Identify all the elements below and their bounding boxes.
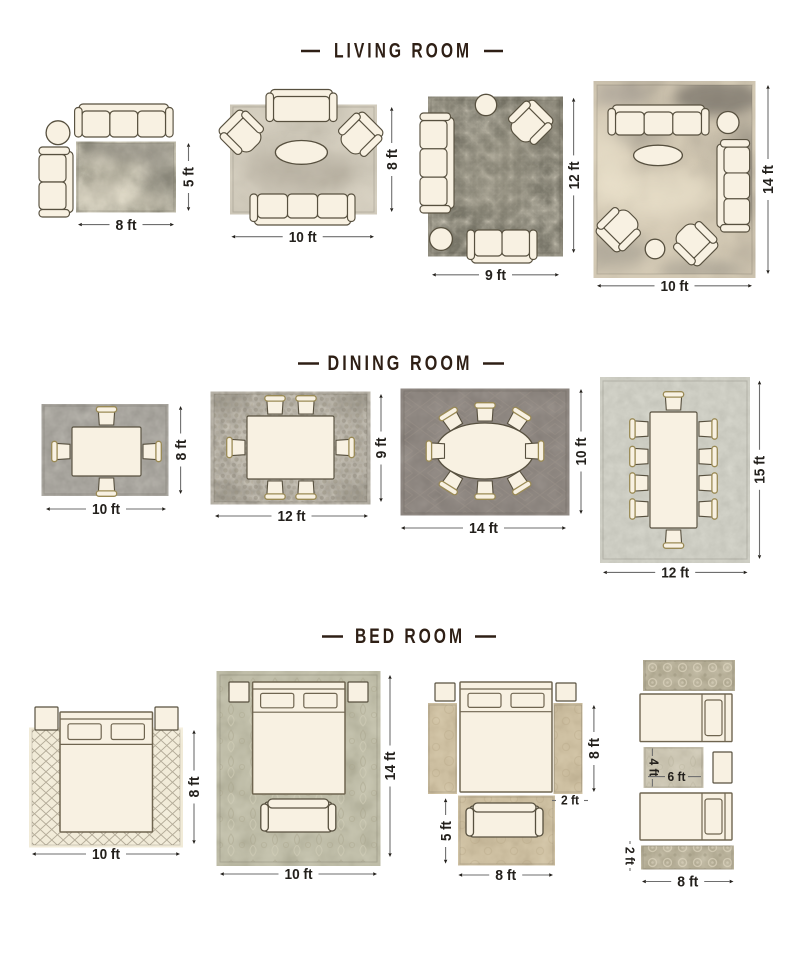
svg-text:5 ft: 5 ft — [182, 167, 198, 187]
svg-text:12 ft: 12 ft — [278, 509, 306, 525]
svg-text:15 ft: 15 ft — [753, 456, 769, 484]
svg-text:9 ft: 9 ft — [485, 268, 506, 284]
svg-text:DINING ROOM: DINING ROOM — [328, 352, 473, 375]
svg-text:10 ft: 10 ft — [661, 279, 689, 295]
svg-text:BED ROOM: BED ROOM — [355, 625, 465, 648]
svg-text:2 ft: 2 ft — [561, 793, 580, 808]
svg-text:10 ft: 10 ft — [574, 437, 590, 465]
svg-text:8 ft: 8 ft — [187, 776, 203, 797]
svg-text:8 ft: 8 ft — [587, 738, 603, 759]
svg-text:12 ft: 12 ft — [567, 161, 583, 189]
svg-text:9 ft: 9 ft — [374, 437, 390, 458]
svg-text:14 ft: 14 ft — [383, 751, 399, 780]
svg-text:6 ft: 6 ft — [668, 770, 687, 784]
svg-text:2 ft: 2 ft — [623, 847, 638, 866]
svg-text:12 ft: 12 ft — [661, 566, 689, 582]
svg-text:LIVING ROOM: LIVING ROOM — [334, 40, 472, 63]
svg-text:4 ft: 4 ft — [647, 759, 661, 778]
svg-text:8 ft: 8 ft — [116, 218, 137, 234]
svg-text:8 ft: 8 ft — [385, 149, 401, 170]
svg-text:8 ft: 8 ft — [174, 439, 190, 460]
svg-text:14 ft: 14 ft — [469, 521, 498, 537]
svg-text:14 ft: 14 ft — [761, 165, 777, 194]
svg-text:8 ft: 8 ft — [677, 875, 698, 891]
svg-text:10 ft: 10 ft — [285, 867, 313, 883]
svg-text:10 ft: 10 ft — [289, 230, 317, 246]
svg-text:10 ft: 10 ft — [92, 502, 120, 518]
svg-text:10 ft: 10 ft — [92, 847, 120, 863]
svg-text:5 ft: 5 ft — [439, 821, 455, 841]
svg-text:8 ft: 8 ft — [495, 868, 516, 884]
